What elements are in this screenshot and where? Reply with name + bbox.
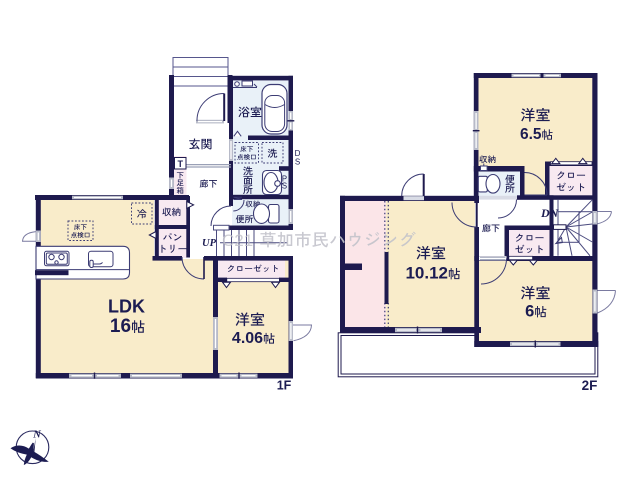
svg-text:N: N xyxy=(32,430,41,441)
svg-text:6.5: 6.5 xyxy=(520,126,542,143)
svg-text:S: S xyxy=(295,158,300,167)
svg-text:1F: 1F xyxy=(277,379,292,393)
svg-text:LDK: LDK xyxy=(108,297,145,317)
svg-text:S: S xyxy=(282,181,287,190)
svg-text:10.12: 10.12 xyxy=(405,264,448,283)
svg-text:DN: DN xyxy=(540,206,560,220)
svg-text:16: 16 xyxy=(110,316,131,337)
svg-text:T: T xyxy=(177,159,183,169)
svg-text:C21: C21 xyxy=(222,231,258,250)
svg-text:6: 6 xyxy=(525,303,534,321)
svg-text:4.06: 4.06 xyxy=(232,330,263,347)
svg-text:2F: 2F xyxy=(582,378,598,393)
svg-text:UP: UP xyxy=(202,238,217,249)
